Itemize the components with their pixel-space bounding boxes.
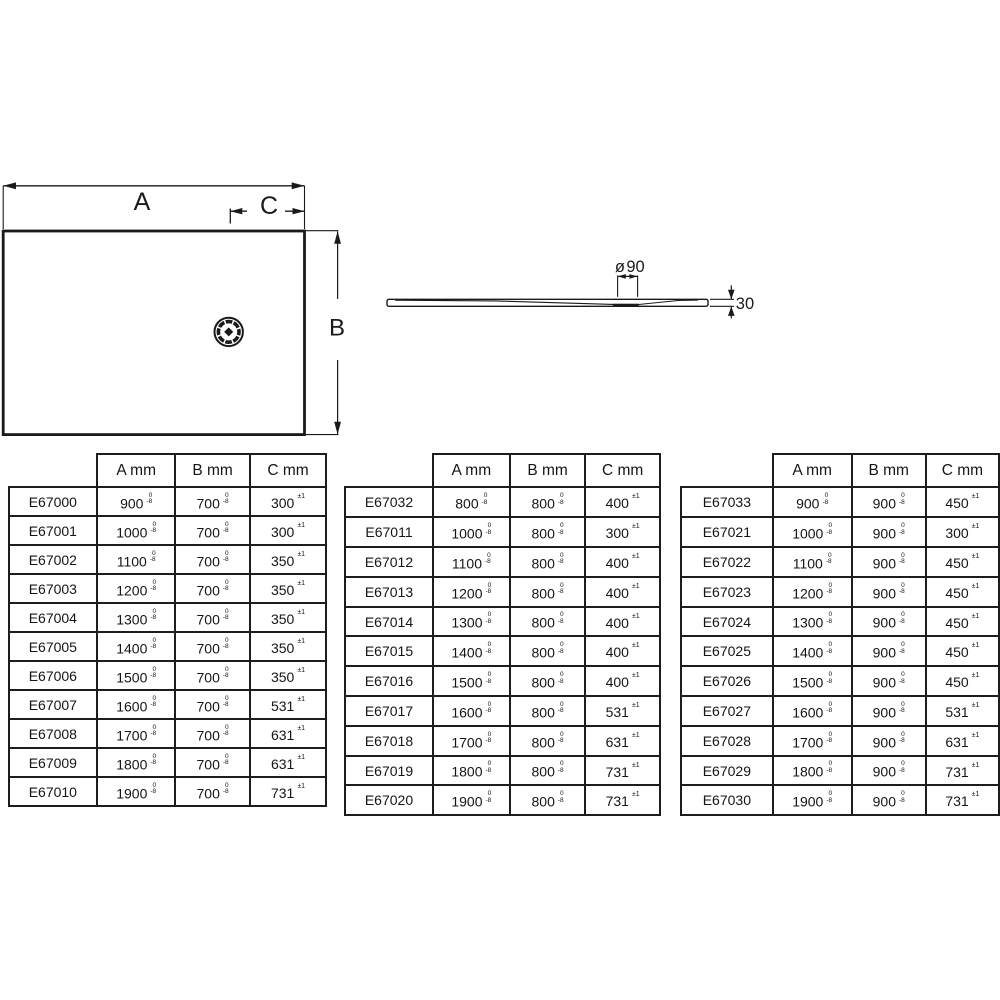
svg-text:30: 30 xyxy=(736,295,754,313)
svg-text:C: C xyxy=(260,192,278,220)
svg-text:ø 90: ø 90 xyxy=(615,258,645,276)
svg-text:B: B xyxy=(329,315,345,342)
svg-text:A: A xyxy=(134,188,151,216)
